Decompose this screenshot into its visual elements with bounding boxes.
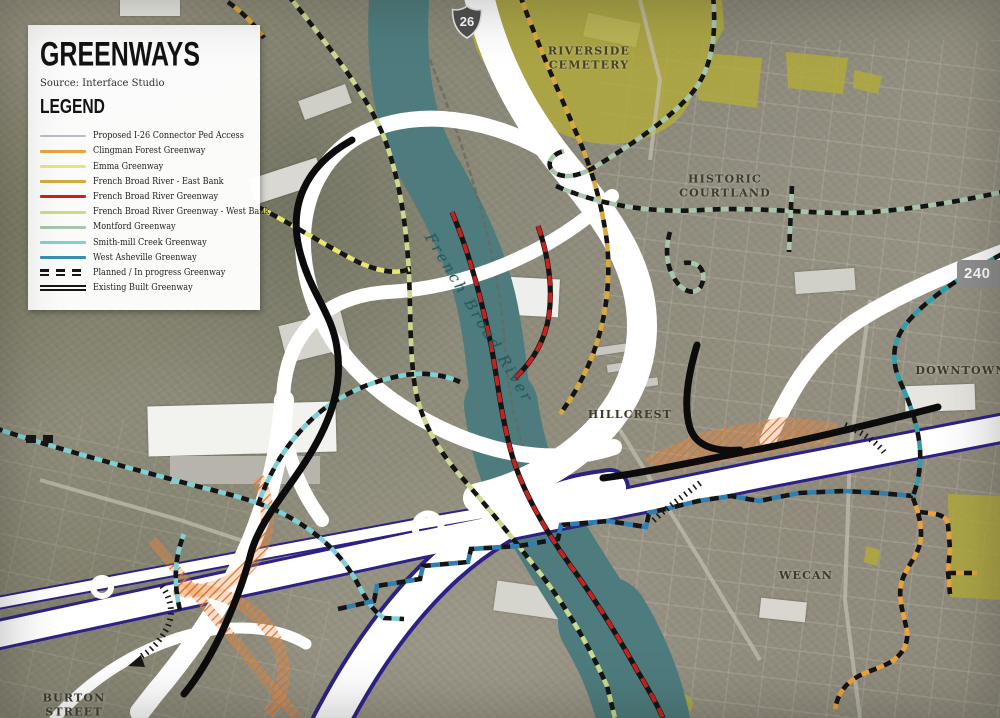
legend-item: French Broad River Greenway	[40, 192, 248, 202]
greenways-map-page: 26 240 RIVERSIDECEMETERY HISTORICCOURTLA…	[0, 0, 1000, 718]
east-park-area	[948, 494, 1000, 600]
legend-swatch	[40, 241, 86, 244]
legend-item: French Broad River Greenway - West Bank	[40, 207, 248, 217]
legend-swatch	[40, 226, 86, 229]
i26-shield: 26	[451, 5, 483, 39]
label-wecan: WECAN	[779, 569, 833, 583]
label-burton-street: BURTONSTREET	[43, 692, 106, 718]
legend-swatch	[40, 150, 86, 153]
legend-item: Proposed I-26 Connector Ped Access	[40, 131, 248, 141]
legend-item: Emma Greenway	[40, 162, 248, 172]
label-historic-courtland: HISTORICCOURTLAND	[679, 173, 771, 202]
legend-swatch	[40, 135, 86, 137]
label-riverside-cemetery: RIVERSIDECEMETERY	[548, 45, 630, 74]
legend-swatch	[40, 256, 86, 259]
map-title: GREENWAYS	[40, 35, 200, 74]
label-downtown: DOWNTOWN	[915, 364, 1000, 378]
i26-shield-number: 26	[460, 14, 474, 29]
legend-swatch	[40, 269, 86, 276]
source-note: Source: Interface Studio	[40, 78, 248, 89]
park-areas	[467, 0, 1000, 716]
emma-greenway-route	[256, 206, 410, 272]
legend-item: West Asheville Greenway	[40, 253, 248, 263]
legend-swatch	[40, 285, 86, 292]
legend-item: Montford Greenway	[40, 222, 248, 232]
legend-item: Planned / In progress Greenway	[40, 268, 248, 278]
legend-swatch	[40, 211, 86, 214]
legend-heading: LEGEND	[40, 96, 105, 119]
legend-item: Clingman Forest Greenway	[40, 146, 248, 156]
legend-swatch	[40, 180, 86, 183]
label-hillcrest: HILLCREST	[588, 408, 672, 422]
legend-item: Existing Built Greenway	[40, 283, 248, 293]
legend-swatch	[40, 195, 86, 198]
legend-panel: GREENWAYS Source: Interface Studio LEGEN…	[28, 25, 260, 310]
legend-item: French Broad River - East Bank	[40, 177, 248, 187]
legend-item: Smith-mill Creek Greenway	[40, 238, 248, 248]
legend-swatch	[40, 165, 86, 168]
route-240-marker: 240	[957, 260, 1000, 288]
